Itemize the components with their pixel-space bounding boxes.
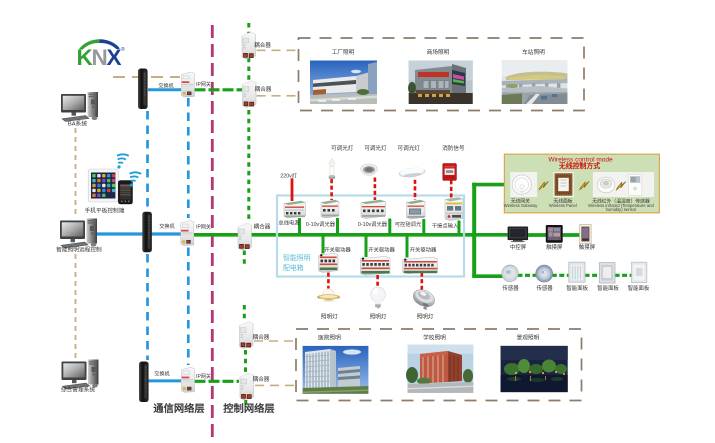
svg-text:景观照明: 景观照明 — [517, 335, 540, 342]
svg-text:可控硅调光: 可控硅调光 — [395, 220, 422, 228]
svg-text:IP网关: IP网关 — [196, 81, 211, 88]
svg-text:可调光灯: 可调光灯 — [331, 144, 354, 152]
svg-text:0-10v调光器: 0-10v调光器 — [358, 220, 388, 228]
svg-text:手机平板控制端: 手机平板控制端 — [85, 207, 125, 215]
svg-text:触摸屏: 触摸屏 — [579, 243, 596, 251]
svg-text:220v灯: 220v灯 — [280, 172, 297, 180]
svg-text:开关驱动器: 开关驱动器 — [410, 246, 437, 254]
svg-text:智能照明: 智能照明 — [283, 253, 311, 262]
svg-text:中控屏: 中控屏 — [510, 243, 527, 251]
svg-text:耦合器: 耦合器 — [255, 85, 272, 93]
svg-text:消防信号: 消防信号 — [442, 144, 465, 152]
svg-text:X: X — [107, 45, 122, 70]
svg-text:交换机: 交换机 — [158, 82, 174, 90]
svg-text:智能面板: 智能面板 — [597, 284, 619, 292]
svg-text:交换机: 交换机 — [154, 370, 170, 378]
svg-text:智能面板: 智能面板 — [566, 284, 588, 292]
svg-text:耦合器: 耦合器 — [254, 223, 271, 231]
svg-text:交换机: 交换机 — [159, 222, 175, 230]
svg-text:照明灯: 照明灯 — [321, 313, 338, 321]
svg-text:IP网关: IP网关 — [196, 224, 211, 231]
svg-text:工厂照明: 工厂照明 — [332, 49, 355, 56]
svg-text:照明灯: 照明灯 — [370, 313, 387, 321]
svg-text:总线电源: 总线电源 — [278, 219, 300, 227]
svg-text:可调光灯: 可调光灯 — [398, 144, 421, 152]
svg-text:耦合器: 耦合器 — [254, 41, 271, 49]
svg-text:照明灯: 照明灯 — [417, 313, 434, 321]
svg-text:Wireless Gateway: Wireless Gateway — [504, 203, 539, 208]
svg-text:智能面板: 智能面板 — [628, 284, 650, 292]
svg-text:开关驱动器: 开关驱动器 — [368, 246, 395, 254]
svg-text:N: N — [92, 45, 108, 70]
svg-text:学校照明: 学校照明 — [423, 334, 446, 342]
svg-text:传感器: 传感器 — [537, 284, 554, 292]
svg-text:®: ® — [121, 46, 125, 53]
svg-text:0-10v调光器: 0-10v调光器 — [306, 220, 336, 228]
svg-text:医院照明: 医院照明 — [318, 334, 341, 342]
svg-text:无线控制方式: 无线控制方式 — [558, 161, 600, 170]
svg-text:车站照明: 车站照明 — [522, 48, 545, 56]
svg-text:综合管理系统: 综合管理系统 — [61, 386, 95, 394]
svg-text:控制网络层: 控制网络层 — [223, 402, 274, 415]
svg-text:BA系统: BA系统 — [68, 120, 88, 128]
svg-text:耦合器: 耦合器 — [253, 375, 270, 383]
svg-text:智能照明远程控制: 智能照明远程控制 — [56, 246, 102, 254]
svg-text:商场照明: 商场照明 — [427, 48, 450, 56]
svg-text:开关驱动器: 开关驱动器 — [324, 246, 351, 254]
svg-text:humidity) sensor: humidity) sensor — [606, 207, 637, 212]
svg-text:传感器: 传感器 — [502, 284, 519, 292]
svg-text:Wireless Panel: Wireless Panel — [549, 203, 577, 208]
svg-text:IP网关: IP网关 — [196, 373, 211, 380]
svg-text:配电箱: 配电箱 — [283, 263, 304, 272]
svg-text:可调光灯: 可调光灯 — [364, 144, 387, 152]
svg-text:耦合器: 耦合器 — [253, 333, 270, 341]
svg-text:通信网络层: 通信网络层 — [153, 402, 204, 415]
svg-text:干接点输入: 干接点输入 — [432, 222, 459, 230]
svg-text:触摸屏: 触摸屏 — [546, 243, 563, 251]
